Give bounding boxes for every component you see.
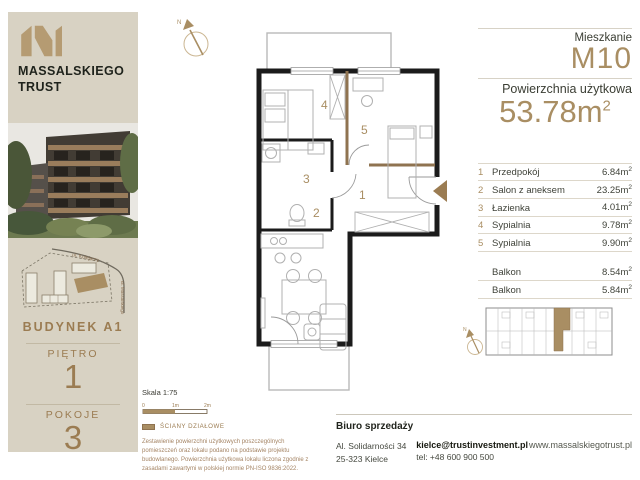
apartment-info-panel: Mieszkanie M10 Powierzchnia użytkowa 53.… [478,0,632,299]
balcony-top [267,33,391,70]
divider [26,343,120,344]
room-no: 3 [478,203,492,214]
legend-label: ŚCIANY DZIAŁOWE [160,423,224,430]
divider [478,78,632,79]
balcony-name: Balkon [478,267,602,278]
website-link[interactable]: www.massalskiegotrust.pl [529,440,632,450]
office-address: Al. Solidarności 34 25-323 Kielce [336,440,416,466]
street-label-top: ul. Kolejarzy [72,252,100,264]
balcony-row: Balkon 8.54m2 [478,264,632,282]
room-row: 5 Sypialnia 9.90m2 [478,234,632,252]
balcony-name: Balkon [478,285,602,296]
svg-text:0: 0 [142,403,145,409]
email-link[interactable]: kielce@trustinvestment.pl [416,440,528,450]
room-area: 23.25m2 [597,184,632,196]
room-no: 4 [478,220,492,231]
phone-link[interactable]: tel: +48 600 900 500 [416,452,494,462]
address-line2: 25-323 Kielce [336,453,416,466]
brand-name-line1: MASSALSKIEGO [18,64,124,80]
street-label-right: ul. Massalskiego [120,281,125,315]
balcony-row: Balkon 5.84m2 [478,281,632,299]
room-area: 4.01m2 [602,201,632,213]
sales-office-label: Biuro sprzedaży [336,421,632,432]
area-unit: m [577,94,603,129]
room-label-3: 3 [303,172,310,186]
room-no: 1 [478,167,492,178]
divider [478,28,632,29]
room-name: Sypialnia [492,238,602,249]
room-list: 1 Przedpokój 6.84m2 2 Salon z aneksem 23… [478,163,632,252]
compass-icon: N [463,327,483,355]
logo-block: MASSALSKIEGO TRUST [8,12,138,123]
building-photo [8,123,138,238]
room-row: 1 Przedpokój 6.84m2 [478,163,632,182]
room-label-1: 1 [359,188,366,202]
area-number: 53.78 [499,94,577,129]
contact-footer: Biuro sprzedaży Al. Solidarności 34 25-3… [336,414,632,466]
balcony-area: 8.54m2 [602,266,632,278]
brand-name-line2: TRUST [18,80,124,96]
office-contact: kielce@trustinvestment.pl tel: +48 600 9… [416,440,529,466]
room-no: 2 [478,185,492,196]
balcony-area: 5.84m2 [602,284,632,296]
svg-text:N: N [177,20,181,26]
scale-bar: 0 1m 2m [142,401,214,417]
sidebar: MASSALSKIEGO TRUST [8,12,138,452]
sidebar-lower-block: ul. Kolejarzy ul. Massalskiego BUDYNEK A… [8,238,138,452]
room-row: 4 Sypialnia 9.78m2 [478,217,632,235]
room-name: Salon z aneksem [492,185,597,196]
compass-icon: N [177,19,208,56]
building-label: BUDYNEK A1 [8,320,138,334]
brand-name: MASSALSKIEGO TRUST [18,64,124,95]
room-area: 6.84m2 [602,166,632,178]
site-plan: ul. Kolejarzy ul. Massalskiego [14,243,132,317]
svg-text:N: N [463,327,467,333]
svg-text:1m: 1m [172,403,179,409]
building-photo-image [8,123,138,238]
scale-block: Skala 1:75 0 1m 2m ŚCIANY DZIAŁOWE Zesta… [142,388,322,474]
usable-area-value: 53.78m2 [478,96,632,129]
room-row: 3 Łazienka 4.01m2 [478,199,632,217]
room-label-2: 2 [313,206,320,220]
brand-logo-m-icon [18,23,66,59]
divider [336,414,632,415]
divider [26,404,120,405]
room-area: 9.90m2 [602,237,632,249]
brochure-page: MASSALSKIEGO TRUST [0,0,640,480]
floor-value: 1 [8,360,138,395]
partition-wall-swatch-icon [142,424,155,430]
room-label-5: 5 [361,123,368,137]
unit-number: M10 [478,44,632,74]
rooms-value: 3 [8,421,138,456]
area-unit-exponent: 2 [603,98,611,115]
room-row: 2 Salon z aneksem 23.25m2 [478,181,632,199]
floor-overview-plan: N [462,298,638,370]
room-name: Przedpokój [492,167,602,178]
address-line1: Al. Solidarności 34 [336,440,416,453]
balcony-bottom [269,346,349,390]
room-no: 5 [478,238,492,249]
balcony-list: Balkon 8.54m2 Balkon 5.84m2 [478,264,632,299]
room-name: Łazienka [492,203,602,214]
room-label-4: 4 [321,98,328,112]
site-plan-highlighted-building [74,273,108,293]
room-area: 9.78m2 [602,219,632,231]
floor-plan: N [170,14,460,404]
room-name: Sypialnia [492,220,602,231]
disclaimer-text: Zestawienie powierzchni użytkowych poszc… [142,438,314,474]
scale-label: Skala 1:75 [142,388,322,397]
legend-partition-walls: ŚCIANY DZIAŁOWE [142,423,322,430]
svg-text:2m: 2m [204,403,211,409]
